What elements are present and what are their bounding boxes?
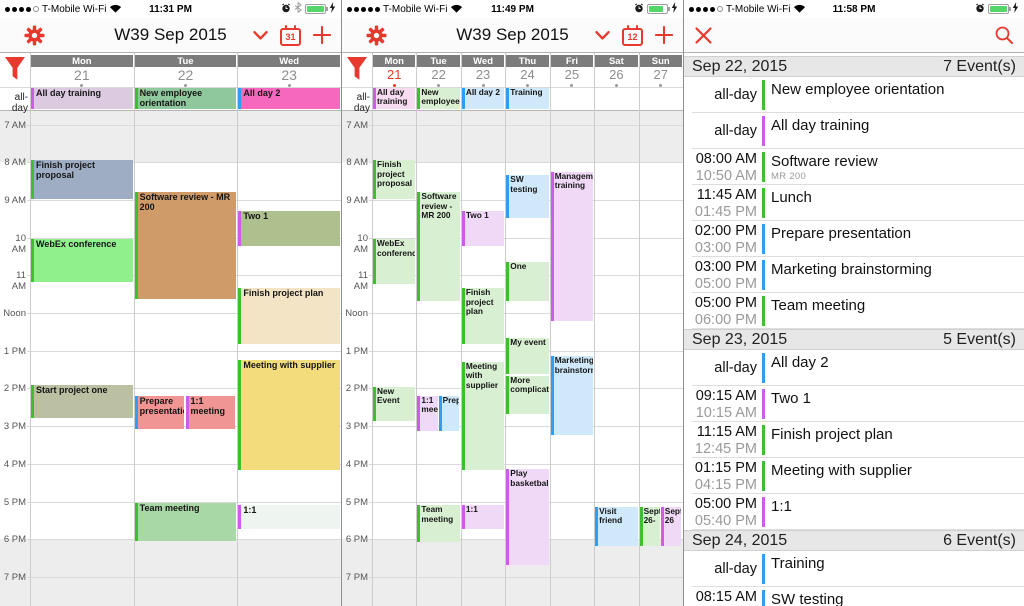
hour-label: 1 PM	[342, 346, 368, 357]
nav-bar: W39 Sep 201531	[0, 18, 341, 53]
all-day-event[interactable]: All day training	[31, 88, 133, 109]
event-list: Sep 22, 20157 Event(s)all-dayNew employe…	[684, 53, 1024, 606]
list-item[interactable]: 08:00 AM10:50 AMSoftware reviewMR 200	[684, 149, 1024, 185]
event-start-time: 11:15 AM	[684, 424, 757, 440]
battery-fill	[990, 6, 1007, 12]
calendar-event[interactable]: WebEx conference	[31, 239, 133, 281]
nav-left	[694, 26, 713, 45]
event-title: New employee orientation	[771, 81, 944, 98]
hour-label: 10 AM	[0, 233, 26, 255]
chevron-down-icon[interactable]	[253, 31, 268, 40]
list-item[interactable]: 09:15 AM10:15 AMTwo 1	[684, 386, 1024, 422]
signal-dot	[689, 7, 694, 12]
calendar-color-bar	[762, 353, 765, 383]
signal-dot	[361, 7, 366, 12]
calendar-icon[interactable]: 31	[280, 28, 301, 46]
event-subtitle: MR 200	[771, 171, 806, 182]
list-item[interactable]: 02:00 PM03:00 PMPrepare presentation	[684, 221, 1024, 257]
alarm-icon	[975, 3, 985, 16]
event-times: 08:15 AM	[684, 587, 757, 605]
page-title: W39 Sep 2015	[70, 25, 271, 45]
day-name-header[interactable]: Thu	[506, 55, 548, 67]
event-title: All day 2	[771, 354, 829, 371]
day-event-dot	[482, 84, 485, 87]
hour-label: 10 AM	[342, 233, 368, 255]
calendar-event[interactable]: Two 1	[462, 211, 504, 246]
hour-label: 7 AM	[0, 120, 26, 131]
event-times: 11:45 AM01:45 PM	[684, 185, 757, 220]
wifi-icon	[109, 3, 122, 16]
off-hours-evening	[0, 539, 341, 606]
list-item[interactable]: 08:15 AMSW testing	[684, 587, 1024, 606]
nav-left	[352, 25, 387, 46]
off-hours-morning	[342, 110, 683, 162]
calendar-event[interactable]: Start project one	[31, 385, 133, 418]
list-section-header: Sep 23, 20155 Event(s)	[684, 329, 1024, 350]
calendar-icon[interactable]: 12	[622, 28, 643, 46]
signal-strength-icon	[347, 7, 380, 12]
all-day-event[interactable]: All day 2	[238, 88, 340, 109]
event-title: Prepare presentation	[771, 225, 911, 242]
battery-fill	[649, 6, 663, 12]
signal-dot	[354, 7, 359, 12]
screen: T-Mobile Wi-Fi11:31 PMW39 Sep 2015317 AM…	[0, 0, 1024, 606]
event-title: Marketing brainstorming	[771, 261, 932, 278]
day-name-header[interactable]: Wed	[238, 55, 340, 67]
list-item[interactable]: 01:15 PM04:15 PMMeeting with supplier	[684, 458, 1024, 494]
alarm-icon	[281, 3, 291, 16]
calendar-color-bar	[762, 80, 765, 110]
event-times: 08:00 AM10:50 AM	[684, 149, 757, 184]
status-bar: T-Mobile Wi-Fi11:58 PM	[684, 0, 1024, 18]
hour-label: 9 AM	[342, 195, 368, 206]
event-times: 01:15 PM04:15 PM	[684, 458, 757, 493]
plus-icon[interactable]	[655, 26, 673, 44]
charging-bolt-icon	[1012, 2, 1019, 16]
calendar-color-bar	[762, 296, 765, 326]
calendar-event[interactable]: SW testing	[506, 175, 548, 217]
gear-icon[interactable]	[24, 25, 45, 46]
calendar-color-bar	[762, 554, 765, 584]
day-number[interactable]: 26	[594, 67, 638, 83]
list-item[interactable]: 03:00 PM05:00 PMMarketing brainstorming	[684, 257, 1024, 293]
hour-label: 6 PM	[0, 534, 26, 545]
battery-fill	[307, 6, 324, 12]
event-times: 05:00 PM05:40 PM	[684, 494, 757, 529]
event-title: Meeting with supplier	[771, 462, 912, 479]
signal-dot	[33, 6, 39, 12]
event-title: 1:1	[771, 498, 792, 515]
wifi-icon	[450, 3, 463, 16]
close-icon[interactable]	[694, 26, 713, 45]
bluetooth-icon	[294, 2, 302, 16]
list-section-header: Sep 24, 20156 Event(s)	[684, 530, 1024, 551]
day-number[interactable]: 22	[134, 67, 238, 83]
all-day-event[interactable]: Training	[506, 88, 548, 109]
event-times: 02:00 PM03:00 PM	[684, 221, 757, 256]
row-separator	[692, 328, 1024, 329]
event-start-time: 11:45 AM	[684, 187, 757, 203]
all-day-label: all-day	[684, 77, 757, 113]
signal-dot	[5, 7, 10, 12]
hour-label: 11 AM	[342, 270, 368, 292]
day-name-header[interactable]: Sun	[640, 55, 682, 67]
day-name-header[interactable]: Mon	[373, 55, 415, 67]
event-end-time: 06:00 PM	[684, 312, 757, 328]
calendar-color-bar	[762, 461, 765, 491]
hour-label: 2 PM	[342, 383, 368, 394]
hour-line	[27, 351, 341, 352]
hour-label: Noon	[342, 308, 368, 319]
event-title: SW testing	[771, 591, 844, 606]
calendar-event[interactable]: Finish project plan	[238, 288, 340, 344]
nav-right: 12	[595, 25, 673, 46]
event-times: 03:00 PM05:00 PM	[684, 257, 757, 292]
event-times: 09:15 AM10:15 AM	[684, 386, 757, 421]
carrier-label: T-Mobile Wi-Fi	[42, 4, 106, 15]
day-name-header[interactable]: Tue	[417, 55, 459, 67]
signal-dot	[703, 7, 708, 12]
all-day-label: all-day	[684, 551, 757, 587]
phone-seven-day-week: T-Mobile Wi-Fi11:49 PMW39 Sep 2015127 AM…	[342, 0, 683, 606]
hour-label: 1 PM	[0, 346, 26, 357]
all-day-separator	[342, 110, 683, 111]
nav-bar	[684, 18, 1024, 53]
event-end-time: 05:00 PM	[684, 276, 757, 292]
status-right-icons	[281, 2, 336, 16]
calendar-event[interactable]: Sept 26	[661, 507, 681, 546]
event-start-time: 09:15 AM	[684, 388, 757, 404]
event-end-time: 12:45 PM	[684, 441, 757, 457]
day-number[interactable]: 24	[505, 67, 549, 83]
event-start-time: 08:15 AM	[684, 589, 757, 605]
day-event-dot	[615, 84, 618, 87]
list-item[interactable]: 05:00 PM05:40 PM1:1	[684, 494, 1024, 530]
day-event-dot	[288, 84, 291, 87]
status-bar: T-Mobile Wi-Fi11:49 PM	[342, 0, 683, 18]
calendar-event[interactable]: 1:1	[462, 505, 504, 529]
section-date: Sep 22, 2015	[692, 58, 787, 76]
calendar-color-bar	[762, 224, 765, 254]
calendar-event[interactable]: New Event	[373, 387, 415, 422]
event-end-time: 01:45 PM	[684, 204, 757, 220]
calendar-color-bar	[762, 116, 765, 146]
hour-label: 6 PM	[342, 534, 368, 545]
signal-dot	[710, 7, 715, 12]
all-day-label: all-day	[684, 113, 757, 149]
section-event-count: 5 Event(s)	[943, 331, 1016, 349]
hour-label: 8 AM	[342, 157, 368, 168]
hour-label: 5 PM	[342, 497, 368, 508]
day-name-header[interactable]: Fri	[551, 55, 593, 67]
list-section-header: Sep 22, 20157 Event(s)	[684, 56, 1024, 77]
calendar-event[interactable]: Finish project proposal	[31, 160, 133, 199]
carrier-label: T-Mobile Wi-Fi	[726, 4, 790, 15]
all-day-event[interactable]: New employee orientation	[135, 88, 237, 109]
hour-label: Noon	[0, 308, 26, 319]
event-start-time: 08:00 AM	[684, 151, 757, 167]
row-separator	[692, 529, 1024, 530]
signal-dot	[26, 7, 31, 12]
calendar-event[interactable]: Management training	[551, 172, 593, 322]
all-day-label: all-day	[342, 92, 370, 114]
off-hours-morning	[0, 110, 341, 162]
signal-dot	[347, 7, 352, 12]
signal-dot	[696, 7, 701, 12]
all-day-separator	[0, 110, 341, 111]
event-start-time: 01:15 PM	[684, 460, 757, 476]
event-title: All day training	[771, 117, 869, 134]
day-event-dot	[526, 84, 529, 87]
section-event-count: 6 Event(s)	[943, 532, 1016, 550]
signal-dot	[717, 6, 723, 12]
event-title: Two 1	[771, 390, 811, 407]
event-title: Team meeting	[771, 297, 865, 314]
panel-divider	[683, 0, 684, 606]
calendar-color-bar	[762, 425, 765, 455]
calendar-color-bar	[762, 590, 765, 606]
chevron-down-icon[interactable]	[595, 31, 610, 40]
day-name-header[interactable]: Sat	[595, 55, 637, 67]
calendar-event[interactable]: Meeting with supplier	[238, 360, 340, 470]
hour-label: 4 PM	[342, 459, 368, 470]
battery-icon	[305, 4, 326, 14]
signal-strength-icon	[5, 6, 39, 12]
hour-label: 11 AM	[0, 270, 26, 292]
day-name-header[interactable]: Mon	[31, 55, 133, 67]
calendar-event[interactable]: Play basketball	[506, 469, 548, 564]
all-day-event[interactable]: All day 2	[462, 88, 504, 109]
list-item[interactable]: all-dayAll day training	[684, 113, 1024, 149]
calendar-event[interactable]: 1:1	[238, 505, 340, 529]
day-number[interactable]: 27	[639, 67, 683, 83]
status-right-icons	[975, 2, 1019, 16]
panel-divider	[341, 0, 342, 606]
event-end-time: 05:40 PM	[684, 513, 757, 529]
list-item[interactable]: 05:00 PM06:00 PMTeam meeting	[684, 293, 1024, 329]
hour-label: 2 PM	[0, 383, 26, 394]
nav-left	[10, 25, 45, 46]
section-date: Sep 23, 2015	[692, 331, 787, 349]
nav-right	[994, 25, 1014, 45]
battery-icon	[647, 4, 668, 14]
calendar-event[interactable]: Team meeting	[417, 505, 459, 542]
calendar-color-bar	[762, 389, 765, 419]
event-start-time: 03:00 PM	[684, 259, 757, 275]
calendar-event[interactable]: Finish project proposal	[373, 160, 415, 199]
day-event-dot	[184, 84, 187, 87]
event-start-time: 05:00 PM	[684, 295, 757, 311]
calendar-event[interactable]: More complication	[506, 376, 548, 414]
phone-event-list: T-Mobile Wi-Fi11:58 PMSep 22, 20157 Even…	[684, 0, 1024, 606]
event-end-time: 03:00 PM	[684, 240, 757, 256]
event-times: 05:00 PM06:00 PM	[684, 293, 757, 328]
day-number[interactable]: 22	[416, 67, 460, 83]
gear-icon[interactable]	[366, 25, 387, 46]
alarm-icon	[634, 3, 644, 16]
charging-bolt-icon	[671, 2, 678, 16]
calendar-event[interactable]: Marketing brainstorming	[551, 356, 593, 434]
day-number[interactable]: 23	[461, 67, 505, 83]
carrier-label: T-Mobile Wi-Fi	[383, 4, 447, 15]
section-event-count: 7 Event(s)	[943, 58, 1016, 76]
calendar-event[interactable]: My event	[506, 338, 548, 375]
calendar-color-bar	[762, 497, 765, 527]
event-title: Finish project plan	[771, 426, 893, 443]
plus-icon[interactable]	[313, 26, 331, 44]
list-item[interactable]: 11:15 AM12:45 PMFinish project plan	[684, 422, 1024, 458]
all-day-label: all-day	[0, 92, 28, 114]
hour-label: 7 AM	[342, 120, 368, 131]
phone-three-day-week: T-Mobile Wi-Fi11:31 PMW39 Sep 2015317 AM…	[0, 0, 341, 606]
calendar-event[interactable]: Visit friend	[595, 507, 637, 546]
list-item[interactable]: all-dayNew employee orientation	[684, 77, 1024, 113]
event-title: Software review	[771, 153, 878, 170]
event-start-time: 02:00 PM	[684, 223, 757, 239]
page-title: W39 Sep 2015	[412, 25, 613, 45]
calendar-event[interactable]: 1:1 meeting	[417, 396, 437, 431]
day-number[interactable]: 21	[372, 67, 416, 83]
event-title: Training	[771, 555, 825, 572]
calendar-event[interactable]: Software review - MR 200	[135, 192, 237, 298]
column-line	[550, 53, 551, 606]
event-end-time: 10:15 AM	[684, 405, 757, 421]
hour-label: 4 PM	[0, 459, 26, 470]
search-icon[interactable]	[994, 25, 1014, 45]
calendar-event[interactable]: Sept. 26-	[640, 507, 660, 546]
event-end-time: 10:50 AM	[684, 168, 757, 184]
column-line	[372, 53, 373, 606]
hour-label: 7 PM	[342, 572, 368, 583]
hour-label: 7 PM	[0, 572, 26, 583]
signal-dot	[19, 7, 24, 12]
list-item[interactable]: 11:45 AM01:45 PMLunch	[684, 185, 1024, 221]
calendar-event[interactable]: Finish project plan	[462, 288, 504, 344]
status-bar: T-Mobile Wi-Fi11:31 PM	[0, 0, 341, 18]
wifi-icon	[793, 3, 806, 16]
day-number[interactable]: 21	[30, 67, 134, 83]
day-name-header[interactable]: Tue	[135, 55, 237, 67]
day-number[interactable]: 23	[237, 67, 341, 83]
filter-icon[interactable]	[5, 57, 25, 81]
day-event-dot	[393, 84, 396, 87]
all-day-event[interactable]: New employee	[417, 88, 459, 109]
calendar-event[interactable]: One	[506, 262, 548, 301]
hour-line	[27, 502, 341, 503]
calendar-color-bar	[762, 152, 765, 182]
event-times: 11:15 AM12:45 PM	[684, 422, 757, 457]
all-day-label: all-day	[684, 350, 757, 386]
calendar-event[interactable]: Prepare presentation	[135, 396, 185, 429]
calendar-event[interactable]: Prepare	[439, 396, 459, 431]
calendar-color-bar	[762, 260, 765, 290]
signal-dot	[375, 7, 380, 12]
battery-icon	[988, 4, 1009, 14]
hour-label: 5 PM	[0, 497, 26, 508]
calendar-event[interactable]: Meeting with supplier	[462, 362, 504, 470]
calendar-event[interactable]: 1:1 meeting	[186, 396, 236, 429]
filter-icon[interactable]	[347, 57, 367, 81]
day-number[interactable]: 25	[550, 67, 594, 83]
hour-line	[27, 577, 341, 578]
event-start-time: 05:00 PM	[684, 496, 757, 512]
signal-dot	[12, 7, 17, 12]
section-date: Sep 24, 2015	[692, 532, 787, 550]
signal-dot	[368, 7, 373, 12]
nav-right: 31	[253, 25, 331, 46]
status-right-icons	[634, 2, 678, 16]
day-name-header[interactable]: Wed	[462, 55, 504, 67]
calendar-event[interactable]: Two 1	[238, 211, 340, 246]
hour-label: 9 AM	[0, 195, 26, 206]
calendar-event[interactable]: Team meeting	[135, 503, 237, 540]
calendar-event[interactable]: WebEx conference	[373, 239, 415, 283]
list-item[interactable]: all-dayAll day 2	[684, 350, 1024, 386]
hour-label: 8 AM	[0, 157, 26, 168]
hour-label: 3 PM	[342, 421, 368, 432]
charging-bolt-icon	[329, 2, 336, 16]
all-day-event[interactable]: All day training	[373, 88, 415, 109]
event-title: Lunch	[771, 189, 812, 206]
list-item[interactable]: all-dayTraining	[684, 551, 1024, 587]
hour-label: 3 PM	[0, 421, 26, 432]
nav-bar: W39 Sep 201512	[342, 18, 683, 53]
calendar-color-bar	[762, 188, 765, 218]
hour-line	[27, 125, 341, 126]
event-end-time: 04:15 PM	[684, 477, 757, 493]
calendar-event[interactable]: Software review - MR 200	[417, 192, 459, 300]
signal-strength-icon	[689, 6, 723, 12]
column-line	[30, 53, 31, 606]
